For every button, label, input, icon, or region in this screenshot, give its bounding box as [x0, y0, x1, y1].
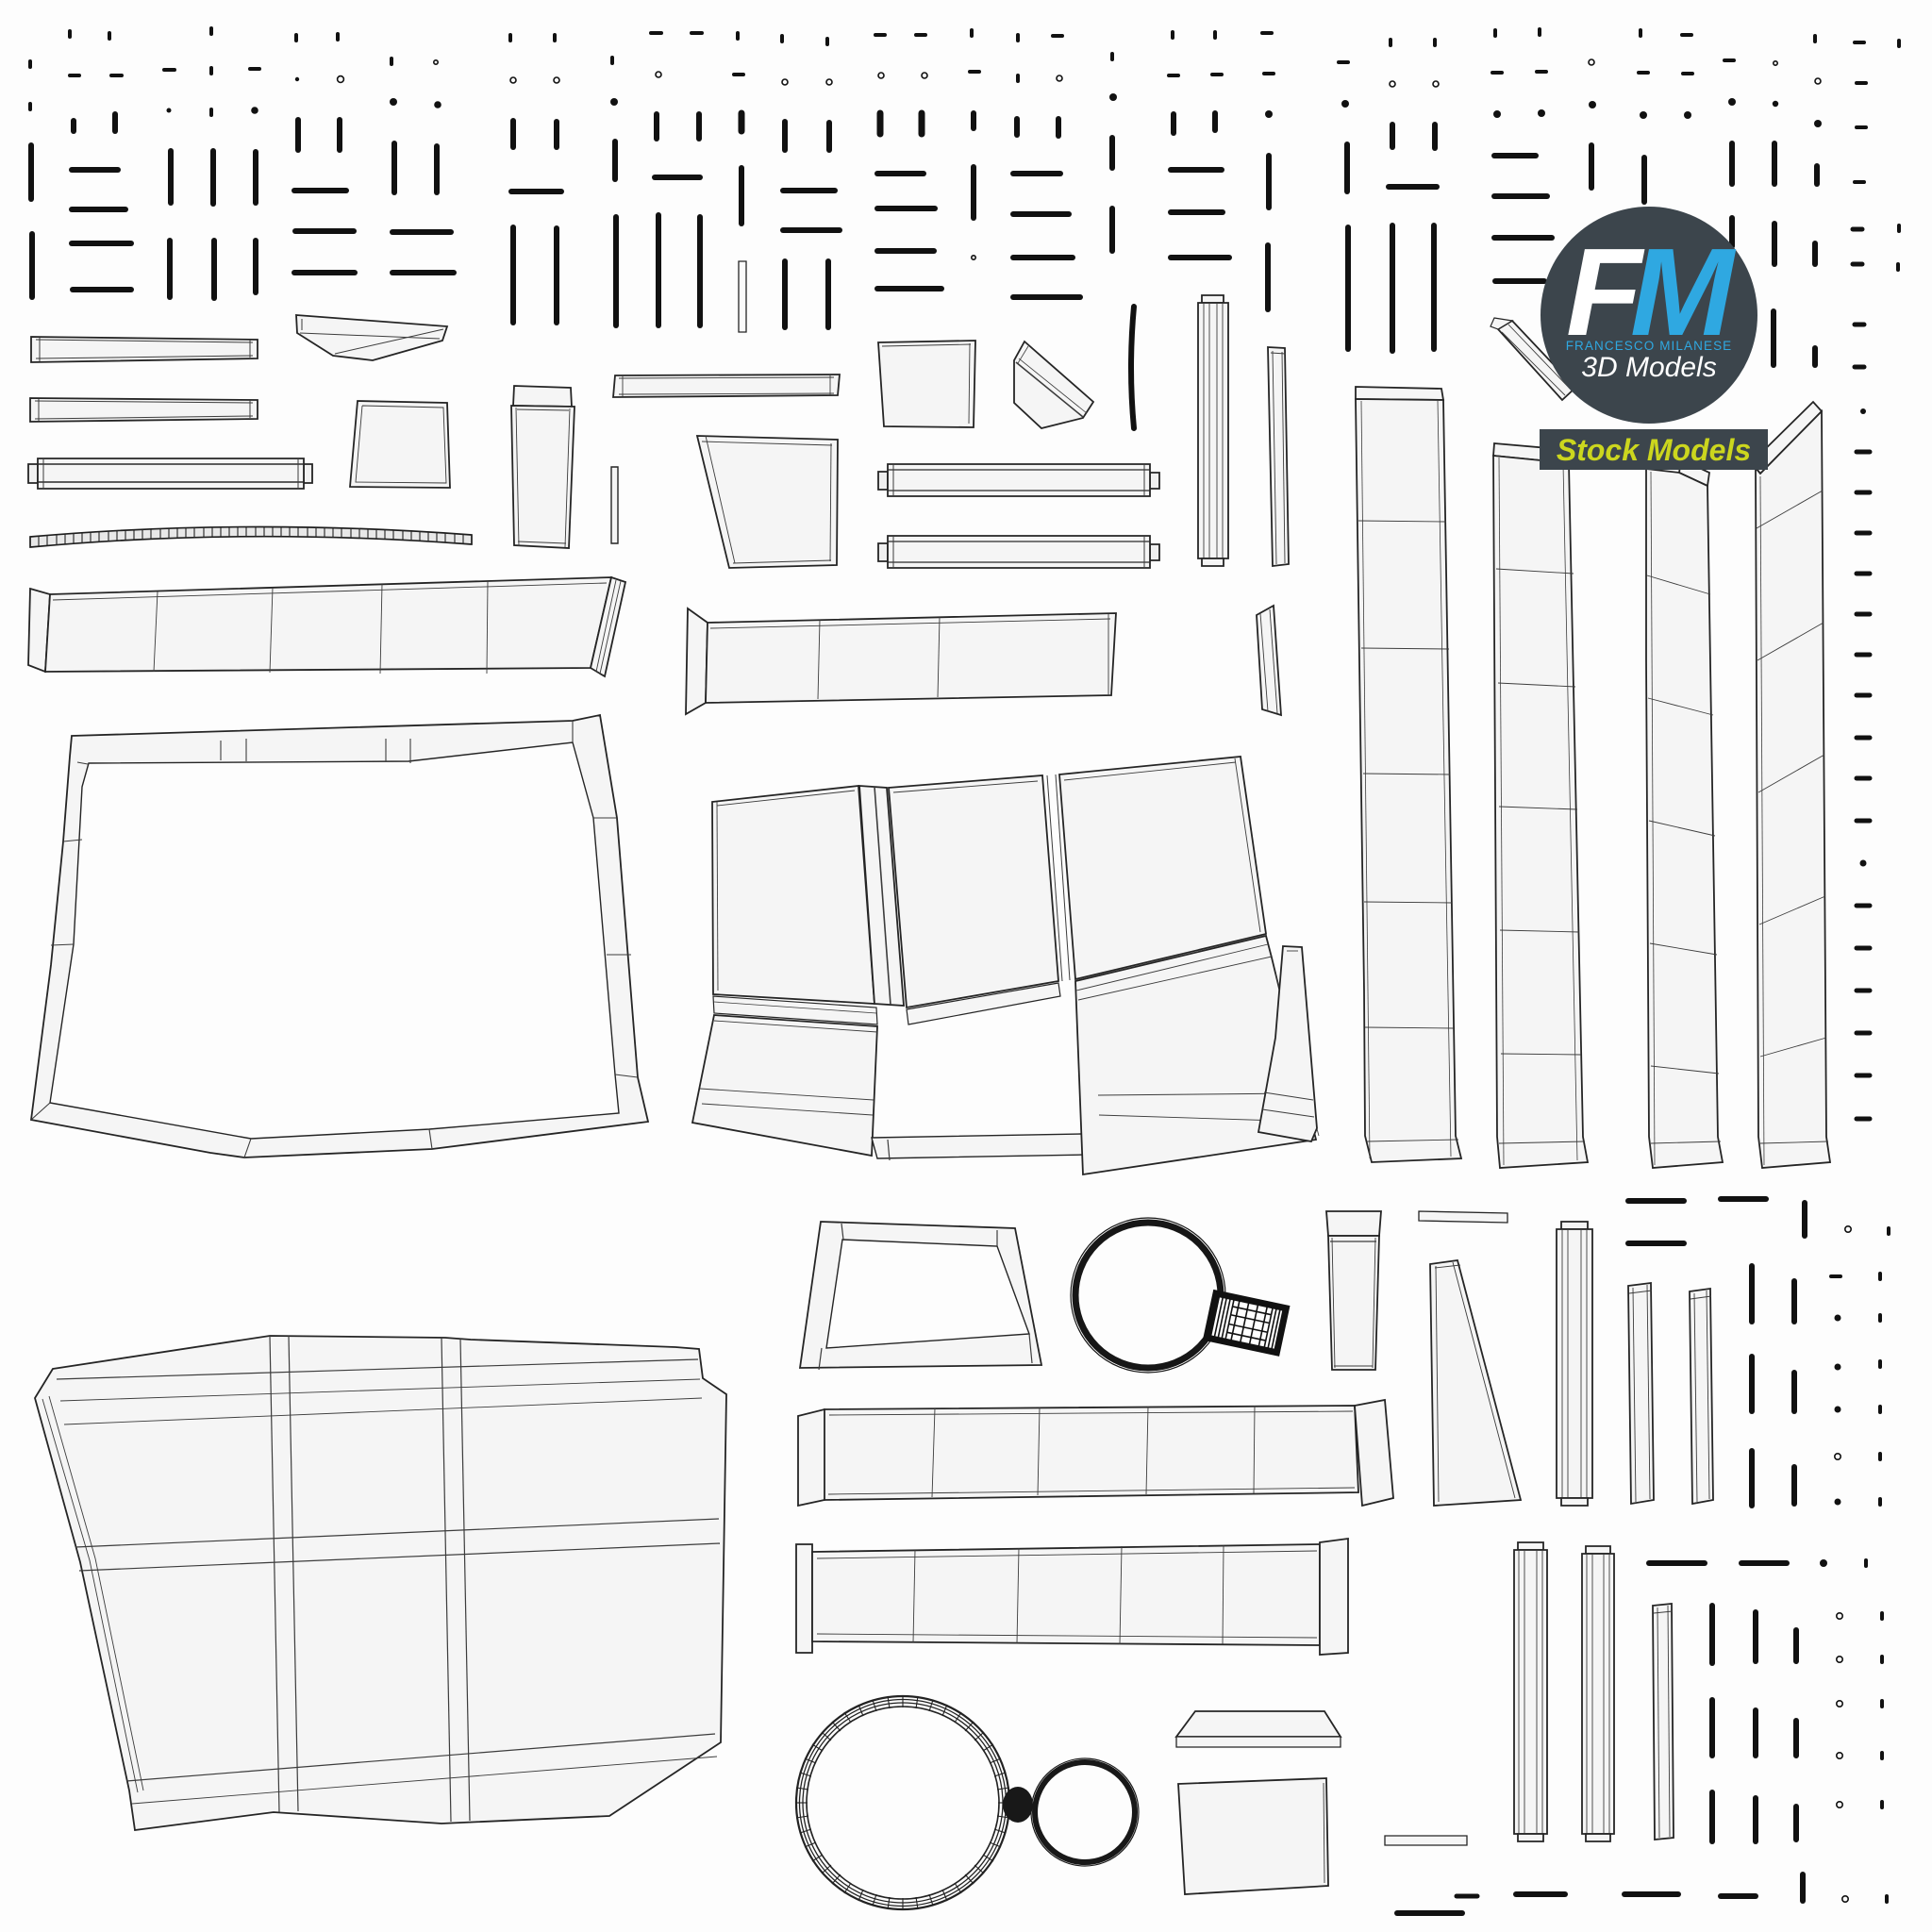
- svg-text:Stock Models: Stock Models: [1557, 433, 1751, 467]
- svg-text:3D Models: 3D Models: [1581, 352, 1716, 383]
- svg-text:FRANCESCO MILANESE: FRANCESCO MILANESE: [1566, 339, 1733, 353]
